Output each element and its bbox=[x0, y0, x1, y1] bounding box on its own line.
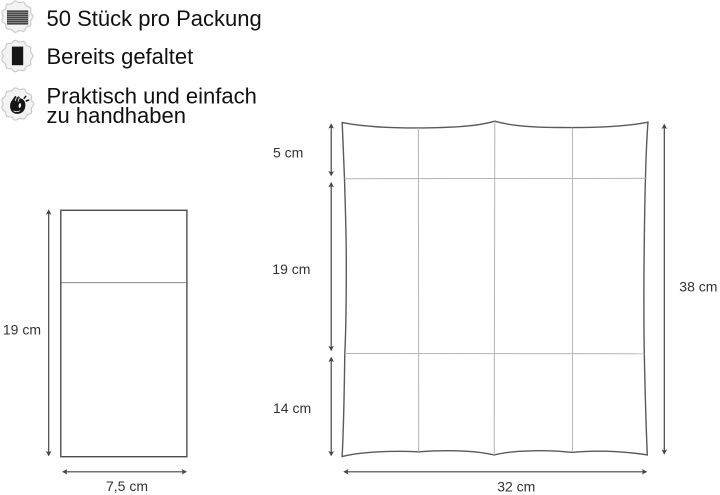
svg-text:38 cm: 38 cm bbox=[679, 279, 717, 295]
svg-text:Bereits gefaltet: Bereits gefaltet bbox=[47, 44, 194, 69]
svg-text:32 cm: 32 cm bbox=[497, 479, 535, 495]
svg-text:19 cm: 19 cm bbox=[272, 261, 310, 277]
svg-text:50 Stück pro Packung: 50 Stück pro Packung bbox=[47, 6, 262, 31]
svg-text:19 cm: 19 cm bbox=[3, 322, 41, 338]
svg-text:zu handhaben: zu handhaben bbox=[47, 103, 186, 128]
svg-text:14 cm: 14 cm bbox=[273, 400, 311, 416]
svg-text:5 cm: 5 cm bbox=[273, 145, 303, 161]
svg-text:7,5 cm: 7,5 cm bbox=[106, 478, 148, 494]
